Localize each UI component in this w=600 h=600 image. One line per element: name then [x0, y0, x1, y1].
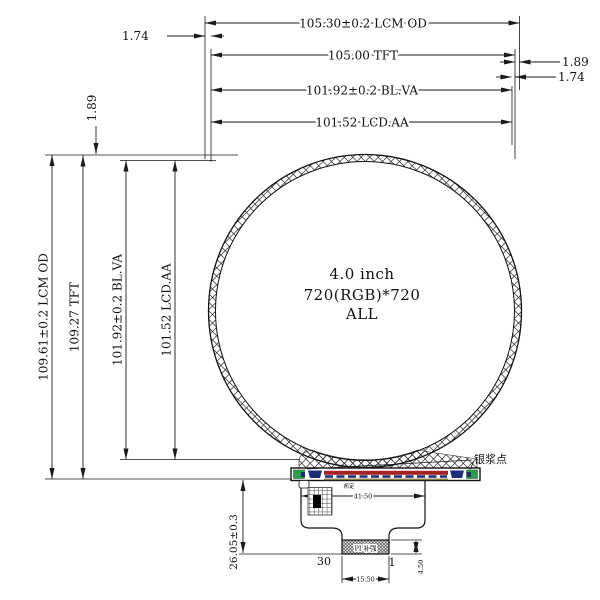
- right-offset-dims: 1.89 1.74: [496, 55, 589, 84]
- dim-label-connector-width: 15.50: [356, 576, 375, 584]
- grid-sticker-mark: [313, 495, 321, 508]
- spec-resolution: 720(RGB)*720: [304, 286, 421, 304]
- fpc-outline-right: [389, 481, 425, 541]
- dim-label-tft-height: 109.27 TFT: [68, 282, 82, 352]
- lcm-mechanical-drawing: 105.30±0.2 LCM OD 105.00 TFT 101.92±0.2 …: [0, 0, 600, 600]
- pin-30-label: 30: [317, 555, 331, 568]
- dim-label-connector-height: 4.50: [417, 560, 425, 574]
- bonding-strip-red: [324, 471, 448, 475]
- dim-label-offset-left: 1.89: [85, 95, 99, 122]
- stiffener-label: PI 补强: [354, 544, 377, 553]
- fpc: 邦定 41.50 PI 补强 30 1 15.50 4.50 26.05±0.3: [228, 480, 425, 584]
- label-tab: [299, 481, 309, 489]
- dim-label-fpc-height: 26.05±0.3: [228, 514, 240, 570]
- dim-label-offset-right-2: 1.74: [558, 70, 585, 84]
- bonding-label: 邦定: [343, 482, 355, 490]
- dim-label-lcm-od-width: 105.30±0.2 LCM OD: [299, 17, 427, 31]
- panel-spec-text: 4.0 inch 720(RGB)*720 ALL: [304, 265, 421, 323]
- pad-mark-left: [301, 472, 305, 477]
- dim-label-tft-width: 105.00 TFT: [328, 49, 398, 63]
- dim-label-offset-right-1: 1.89: [562, 55, 589, 69]
- dim-label-blva-height: 101.92±0.2 BL.VA: [111, 254, 125, 366]
- dim-label-fpc-width: 41.50: [354, 493, 373, 501]
- top-dimensions: 105.30±0.2 LCM OD 105.00 TFT 101.92±0.2 …: [205, 17, 520, 130]
- dim-label-lcm-od-height: 109.61±0.2 LCM OD: [37, 253, 51, 381]
- silver-paste-label: 银浆点: [474, 452, 507, 466]
- ic-mark-left: [308, 471, 322, 479]
- dim-label-blva-width: 101.92±0.2 BL.VA: [306, 84, 418, 98]
- left-dimensions: 109.61±0.2 LCM OD 109.27 TFT 101.92±0.2 …: [37, 95, 176, 479]
- spec-size: 4.0 inch: [329, 265, 394, 283]
- dim-label-lcdaa-height: 101.52 LCD.AA: [160, 263, 174, 357]
- spec-all: ALL: [345, 305, 378, 323]
- pad-mark-right: [467, 472, 471, 477]
- ic-mark-right: [450, 471, 464, 479]
- pin-1-label: 1: [389, 556, 396, 569]
- dim-label-offset-top-left: 1.74: [122, 29, 149, 43]
- dim-label-lcdaa-width: 101.52 LCD.AA: [315, 116, 409, 130]
- bonding-bar: [291, 468, 480, 481]
- top-left-offset-dim: 1.74: [122, 29, 224, 43]
- drawing-canvas: 105.30±0.2 LCM OD 105.00 TFT 101.92±0.2 …: [0, 0, 600, 600]
